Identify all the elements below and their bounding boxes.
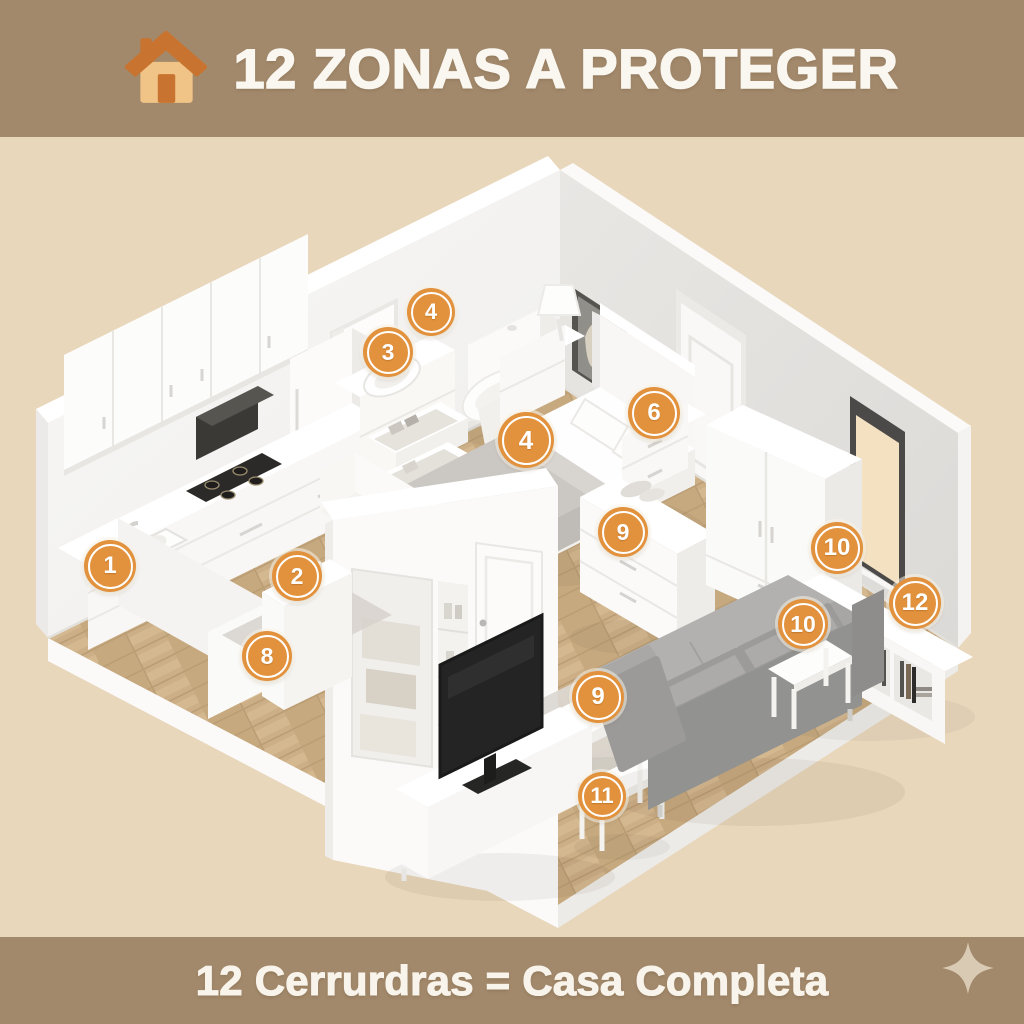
house-icon <box>125 31 207 107</box>
drinking-glass <box>312 561 321 576</box>
footer-band: 12 Cerrurdras = Casa Completa <box>0 937 1024 1024</box>
header-band: 12 ZONAS A PROTEGER <box>0 0 1024 137</box>
page-title: 12 ZONAS A PROTEGER <box>233 36 898 101</box>
floorplan-illustration <box>0 137 1024 937</box>
footer-caption: 12 Cerrurdras = Casa Completa <box>196 957 829 1005</box>
display-shelf <box>352 569 432 767</box>
infographic-canvas: 12 ZONAS A PROTEGER <box>0 0 1024 1024</box>
sparkle-icon <box>941 941 995 995</box>
